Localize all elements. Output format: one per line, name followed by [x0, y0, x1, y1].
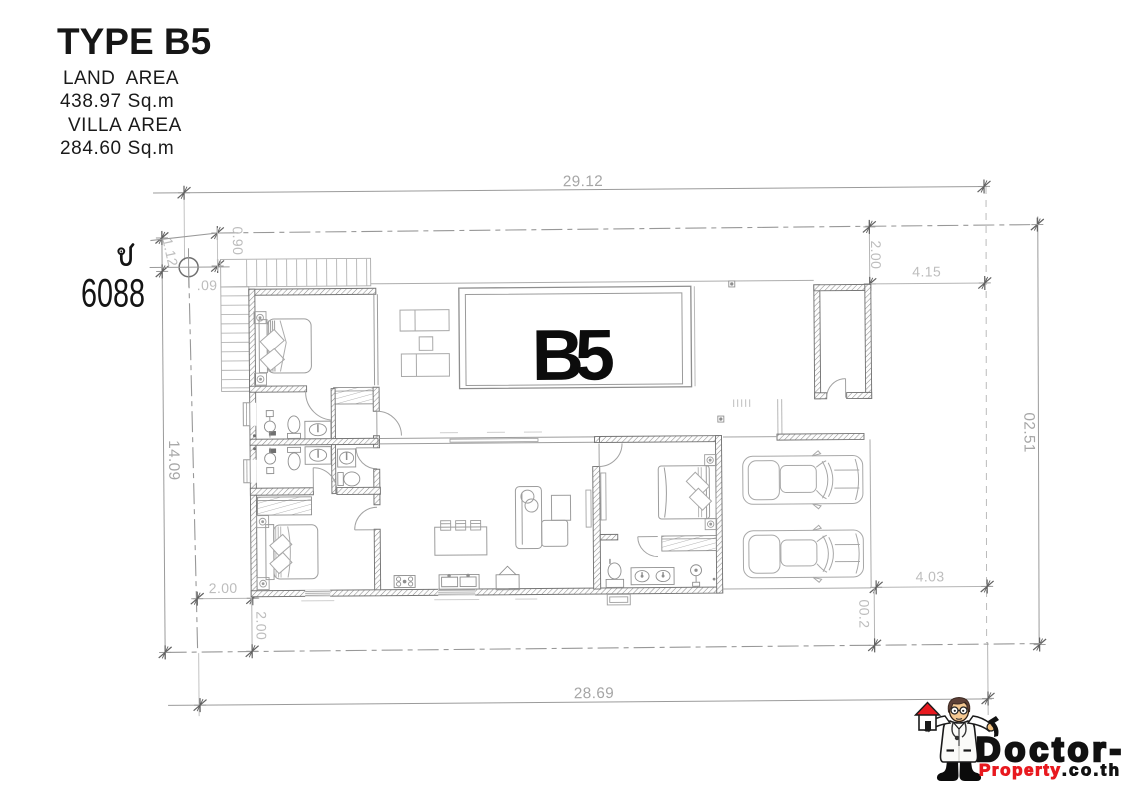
svg-text:TYPE B5: TYPE B5	[57, 21, 211, 62]
svg-text:.09: .09	[197, 277, 218, 293]
svg-text:00.2: 00.2	[856, 599, 872, 628]
svg-text:02.51: 02.51	[1020, 412, 1037, 452]
svg-text:29.12: 29.12	[563, 173, 603, 190]
svg-text:6088: 6088	[81, 271, 145, 316]
svg-text:LAND AREA: LAND AREA	[63, 68, 179, 89]
svg-text:14.09: 14.09	[165, 440, 182, 480]
svg-text:2.00: 2.00	[868, 240, 884, 269]
svg-text:4.15: 4.15	[912, 263, 941, 279]
svg-text:2.00: 2.00	[209, 580, 238, 596]
svg-text:438.97 Sq.m: 438.97 Sq.m	[60, 91, 174, 112]
svg-text:.co.th: .co.th	[1062, 761, 1119, 780]
svg-text:4.03: 4.03	[916, 568, 945, 584]
svg-text:1.12: 1.12	[159, 237, 181, 269]
svg-text:Property: Property	[979, 761, 1061, 780]
svg-text:28.69: 28.69	[574, 685, 614, 702]
svg-text:B5: B5	[532, 315, 616, 396]
svg-text:VILLA AREA: VILLA AREA	[68, 115, 182, 136]
svg-text:284.60 Sq.m: 284.60 Sq.m	[60, 138, 174, 159]
svg-text:2.00: 2.00	[253, 611, 269, 640]
svg-text:0.90: 0.90	[230, 226, 246, 255]
